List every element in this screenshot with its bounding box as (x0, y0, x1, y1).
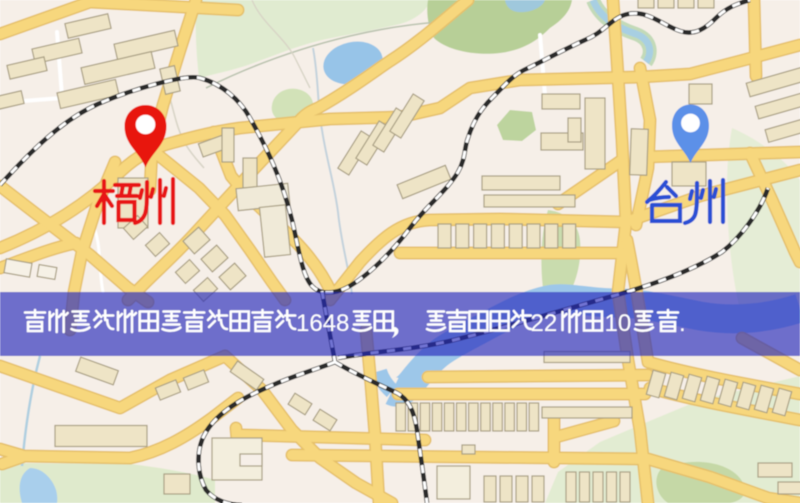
svg-text:22: 22 (531, 310, 558, 337)
svg-text:.: . (679, 310, 686, 337)
svg-text:10: 10 (605, 310, 632, 337)
svg-text:1648: 1648 (296, 310, 349, 337)
